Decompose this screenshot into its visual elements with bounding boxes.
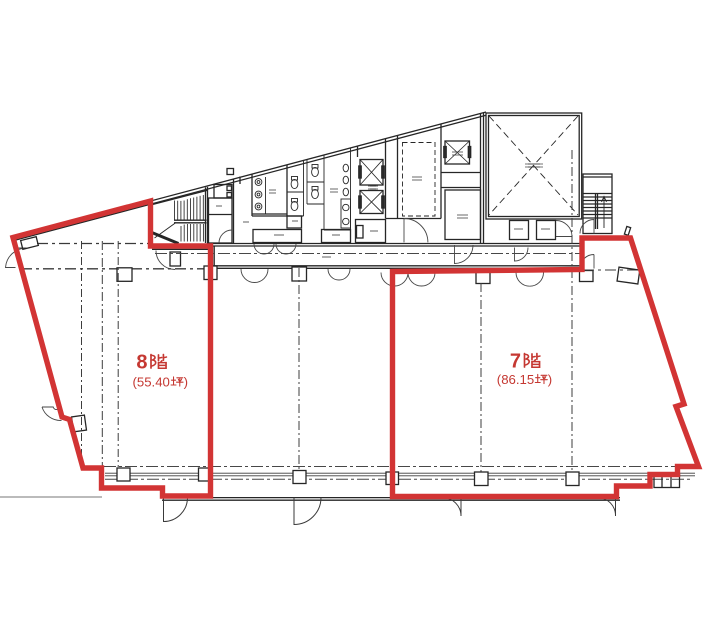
svg-text:7: 7 — [510, 351, 521, 373]
svg-text:): ) — [184, 374, 188, 389]
svg-text:): ) — [548, 372, 552, 387]
svg-text:8: 8 — [136, 352, 147, 374]
svg-text:(55.40: (55.40 — [133, 374, 170, 389]
svg-text:(86.15: (86.15 — [497, 372, 534, 387]
